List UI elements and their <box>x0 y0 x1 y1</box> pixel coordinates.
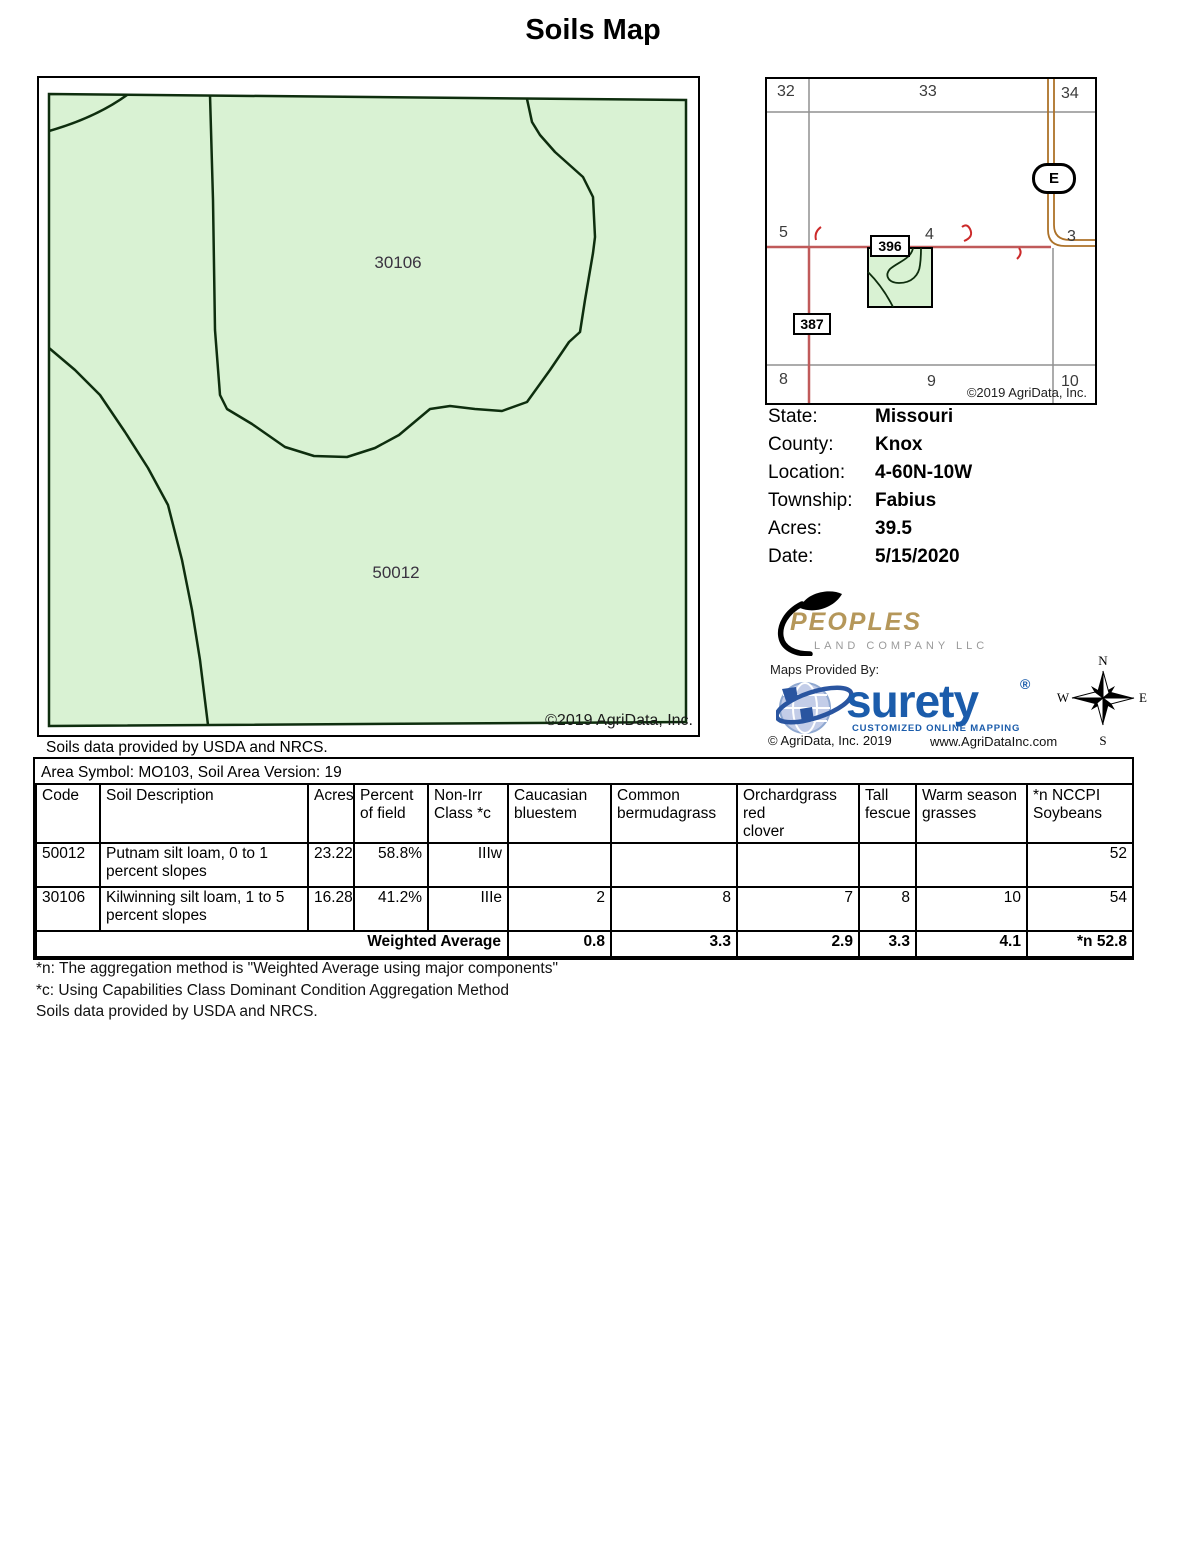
info-row-date: Date: 5/15/2020 <box>768 546 1098 574</box>
cell-fescue <box>859 843 916 887</box>
info-row-state: State: Missouri <box>768 406 1098 434</box>
wa-nccpi: *n 52.8 <box>1027 931 1133 957</box>
registered-mark: ® <box>1020 676 1030 692</box>
cell-nccpi: 54 <box>1027 887 1133 931</box>
cell-percent: 41.2% <box>354 887 428 931</box>
peoples-land-company-logo: PEOPLES LAND COMPANY LLC <box>770 582 990 657</box>
route-marker-E: E <box>1032 163 1076 194</box>
footnote-capabilities: *c: Using Capabilities Class Dominant Co… <box>36 980 558 1002</box>
stream-mark <box>962 225 971 241</box>
col-header-percent: Percent of field <box>354 784 428 843</box>
compass-s: S <box>1099 733 1106 748</box>
section-3: 3 <box>1067 228 1076 246</box>
peoples-subtitle: LAND COMPANY LLC <box>814 640 988 652</box>
cell-nonirr: IIIe <box>428 887 508 931</box>
cell-warm-season: 10 <box>916 887 1027 931</box>
highway-line <box>1054 79 1095 240</box>
main-soils-map-svg <box>39 78 698 735</box>
soils-map-report-page: Soils Map 30106 50012 ©2019 AgriData, In… <box>0 0 1200 1553</box>
cell-caucasian <box>508 843 611 887</box>
info-label: State: <box>768 406 818 428</box>
soil-table: Code Soil Description Acres Percent of f… <box>35 783 1134 958</box>
soil-region-label-50012: 50012 <box>351 563 441 583</box>
cell-nonirr: IIIw <box>428 843 508 887</box>
section-34: 34 <box>1061 85 1079 103</box>
map-copyright: ©2019 AgriData, Inc. <box>545 712 693 730</box>
col-header-nonirr: Non-Irr Class *c <box>428 784 508 843</box>
col-header-description: Soil Description <box>100 784 308 843</box>
section-32: 32 <box>777 83 795 101</box>
table-row: 30106 Kilwinning silt loam, 1 to 5 perce… <box>36 887 1133 931</box>
soil-region-label-30106: 30106 <box>353 253 443 273</box>
inset-locator-map: 32 33 34 5 4 3 8 9 10 396 387 E ©2019 Ag… <box>765 77 1097 405</box>
cell-orchardgrass: 7 <box>737 887 859 931</box>
wa-fescue: 3.3 <box>859 931 916 957</box>
info-value: 5/15/2020 <box>875 546 960 568</box>
cell-bermudagrass <box>611 843 737 887</box>
area-symbol-line: Area Symbol: MO103, Soil Area Version: 1… <box>35 759 1132 783</box>
agridata-url: www.AgriDataInc.com <box>930 734 1057 749</box>
cell-caucasian: 2 <box>508 887 611 931</box>
cell-percent: 58.8% <box>354 843 428 887</box>
col-header-tall-fescue: Tall fescue <box>859 784 916 843</box>
compass-w: W <box>1057 690 1070 705</box>
section-4: 4 <box>925 226 934 244</box>
info-value: Knox <box>875 434 923 456</box>
col-header-orchardgrass: Orchardgrass red clover <box>737 784 859 843</box>
info-label: Location: <box>768 462 845 484</box>
info-row-county: County: Knox <box>768 434 1098 462</box>
wa-warm-season: 4.1 <box>916 931 1027 957</box>
info-label: Township: <box>768 490 853 512</box>
stream-mark <box>1017 248 1021 259</box>
section-5: 5 <box>779 224 788 242</box>
inset-copyright: ©2019 AgriData, Inc. <box>967 385 1087 400</box>
cell-acres: 16.28 <box>308 887 354 931</box>
peoples-wordmark: PEOPLES <box>790 608 922 637</box>
cell-nccpi: 52 <box>1027 843 1133 887</box>
info-row-acres: Acres: 39.5 <box>768 518 1098 546</box>
info-row-township: Township: Fabius <box>768 490 1098 518</box>
section-33: 33 <box>919 83 937 101</box>
cell-warm-season <box>916 843 1027 887</box>
compass-e: E <box>1139 690 1147 705</box>
col-header-caucasian-bluestem: Caucasian bluestem <box>508 784 611 843</box>
surety-branding-block: Maps Provided By: surety ® CUSTOMIZED ON… <box>768 662 1058 752</box>
weighted-average-row: Weighted Average 0.8 3.3 2.9 3.3 4.1 *n … <box>36 931 1133 957</box>
footnote-aggregation: *n: The aggregation method is "Weighted … <box>36 958 558 980</box>
info-value: 4-60N-10W <box>875 462 972 484</box>
info-value: Fabius <box>875 490 936 512</box>
cell-description: Putnam silt loam, 0 to 1 percent slopes <box>100 843 308 887</box>
compass-n: N <box>1098 653 1108 668</box>
route-marker-387: 387 <box>793 313 831 335</box>
cell-fescue: 8 <box>859 887 916 931</box>
cell-orchardgrass <box>737 843 859 887</box>
info-label: Acres: <box>768 518 822 540</box>
field-parcel-polygon <box>49 94 686 726</box>
cell-code: 30106 <box>36 887 100 931</box>
cell-bermudagrass: 8 <box>611 887 737 931</box>
weighted-average-label: Weighted Average <box>36 931 508 957</box>
agridata-copyright: © AgriData, Inc. 2019 <box>768 733 892 748</box>
info-value: Missouri <box>875 406 953 428</box>
map-caption: Soils data provided by USDA and NRCS. <box>46 739 328 757</box>
info-label: County: <box>768 434 833 456</box>
col-header-common-bermudagrass: Common bermudagrass <box>611 784 737 843</box>
wa-orchardgrass: 2.9 <box>737 931 859 957</box>
soil-table-container: Area Symbol: MO103, Soil Area Version: 1… <box>33 757 1134 960</box>
col-header-nccpi-soybeans: *n NCCPI Soybeans <box>1027 784 1133 843</box>
surety-wordmark: surety <box>846 674 978 728</box>
footnote-usda: Soils data provided by USDA and NRCS. <box>36 1001 558 1023</box>
location-info-block: State: Missouri County: Knox Location: 4… <box>768 406 1098 574</box>
info-label: Date: <box>768 546 813 568</box>
route-marker-396: 396 <box>870 235 910 257</box>
cell-acres: 23.22 <box>308 843 354 887</box>
info-value: 39.5 <box>875 518 912 540</box>
col-header-warm-season: Warm season grasses <box>916 784 1027 843</box>
wa-bermudagrass: 3.3 <box>611 931 737 957</box>
info-row-location: Location: 4-60N-10W <box>768 462 1098 490</box>
surety-globe-icon <box>776 679 856 737</box>
section-8: 8 <box>779 371 788 389</box>
page-title: Soils Map <box>0 14 1186 47</box>
col-header-code: Code <box>36 784 100 843</box>
cell-code: 50012 <box>36 843 100 887</box>
footnotes-block: *n: The aggregation method is "Weighted … <box>36 958 558 1023</box>
cell-description: Kilwinning silt loam, 1 to 5 percent slo… <box>100 887 308 931</box>
compass-rose-icon: N E S W <box>1056 648 1150 752</box>
table-header-row: Code Soil Description Acres Percent of f… <box>36 784 1133 843</box>
section-9: 9 <box>927 373 936 391</box>
main-soils-map: 30106 50012 ©2019 AgriData, Inc. <box>37 76 700 737</box>
table-row: 50012 Putnam silt loam, 0 to 1 percent s… <box>36 843 1133 887</box>
stream-mark <box>816 227 821 240</box>
col-header-acres: Acres <box>308 784 354 843</box>
wa-caucasian: 0.8 <box>508 931 611 957</box>
